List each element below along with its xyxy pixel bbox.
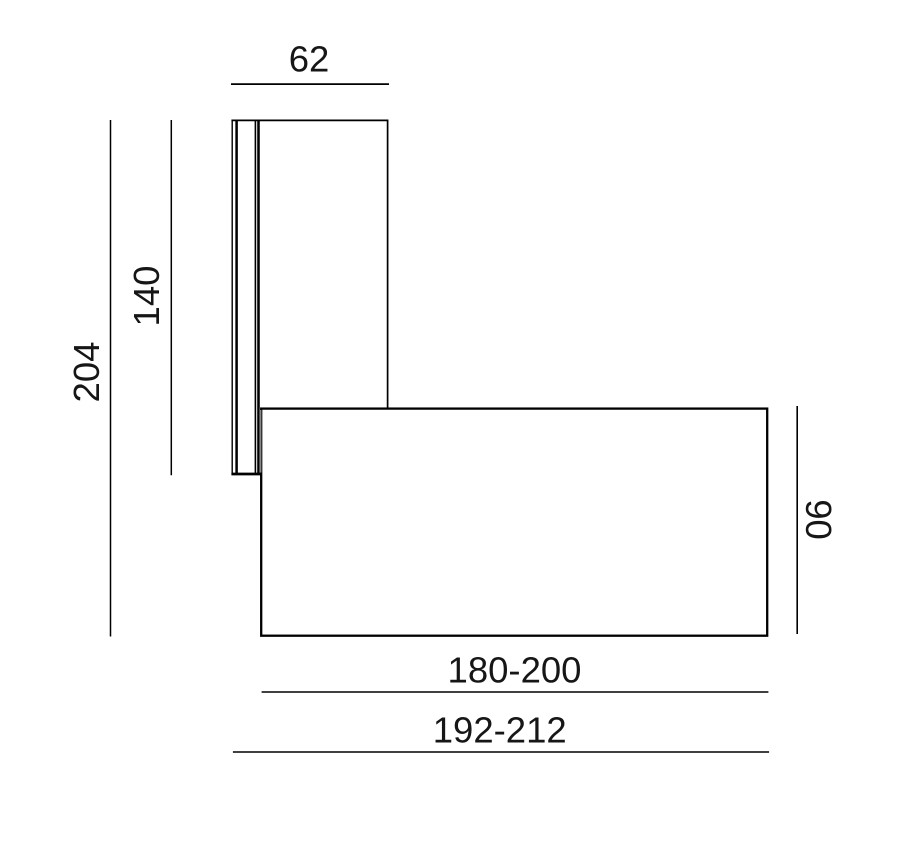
svg-text:192-212: 192-212	[433, 710, 567, 751]
svg-text:62: 62	[289, 39, 330, 80]
svg-text:180-200: 180-200	[448, 649, 582, 690]
svg-text:204: 204	[66, 342, 107, 403]
svg-text:140: 140	[126, 266, 167, 327]
svg-text:90: 90	[798, 499, 839, 540]
